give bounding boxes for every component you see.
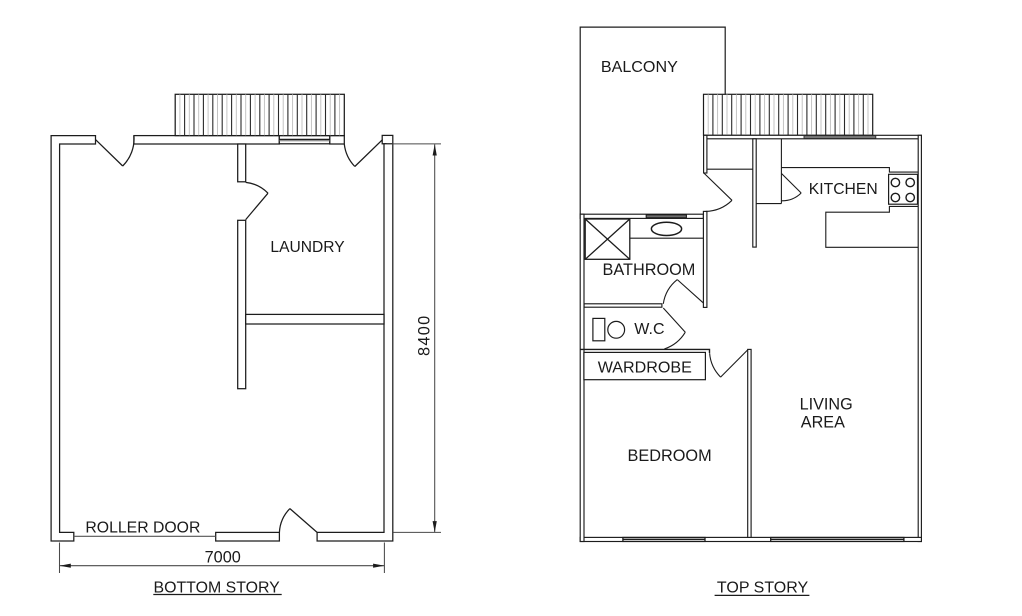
svg-text:LAUNDRY: LAUNDRY (270, 239, 345, 256)
svg-text:KITCHEN: KITCHEN (809, 181, 878, 198)
svg-text:W.C: W.C (634, 321, 664, 338)
svg-text:8400: 8400 (415, 315, 433, 356)
svg-text:BATHROOM: BATHROOM (603, 261, 696, 279)
svg-text:BEDROOM: BEDROOM (628, 447, 712, 465)
svg-text:LIVING: LIVING (800, 395, 853, 413)
svg-text:WARDROBE: WARDROBE (598, 359, 692, 377)
svg-text:ROLLER DOOR: ROLLER DOOR (85, 519, 200, 536)
svg-text:AREA: AREA (801, 413, 845, 431)
svg-text:BOTTOM STORY: BOTTOM STORY (154, 579, 281, 596)
svg-text:BALCONY: BALCONY (601, 58, 678, 76)
svg-text:TOP STORY: TOP STORY (717, 579, 809, 596)
svg-text:7000: 7000 (205, 549, 241, 567)
